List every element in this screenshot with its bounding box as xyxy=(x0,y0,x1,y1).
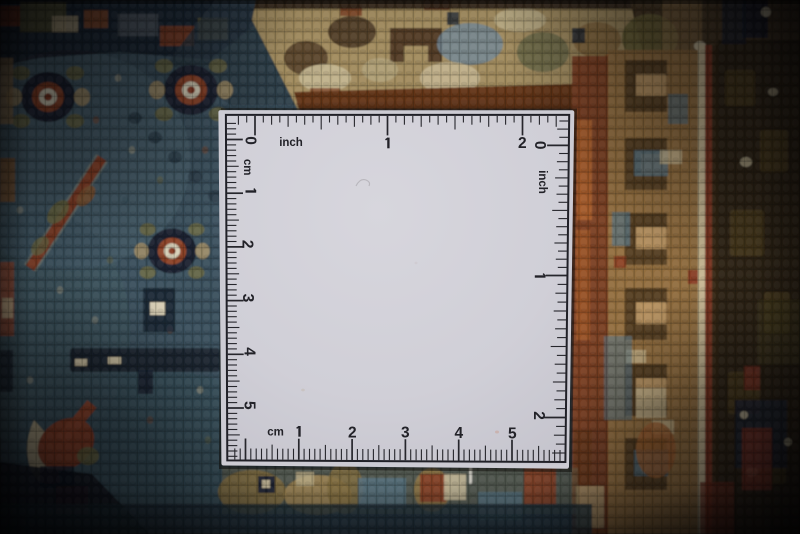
svg-text:4: 4 xyxy=(454,425,463,442)
svg-text:2: 2 xyxy=(239,240,256,249)
svg-text:3: 3 xyxy=(239,294,256,303)
svg-text:cm: cm xyxy=(267,427,284,439)
svg-text:2: 2 xyxy=(530,411,547,420)
svg-text:inch: inch xyxy=(536,170,548,194)
svg-text:2: 2 xyxy=(518,135,527,152)
svg-text:2: 2 xyxy=(348,424,357,441)
svg-text:4: 4 xyxy=(241,347,258,356)
svg-text:3: 3 xyxy=(401,424,410,441)
svg-text:5: 5 xyxy=(241,401,258,410)
svg-text:0: 0 xyxy=(531,141,548,150)
svg-text:inch: inch xyxy=(279,137,303,149)
svg-text:cm: cm xyxy=(241,159,253,176)
svg-text:5: 5 xyxy=(508,425,517,442)
svg-text:0: 0 xyxy=(241,136,258,145)
